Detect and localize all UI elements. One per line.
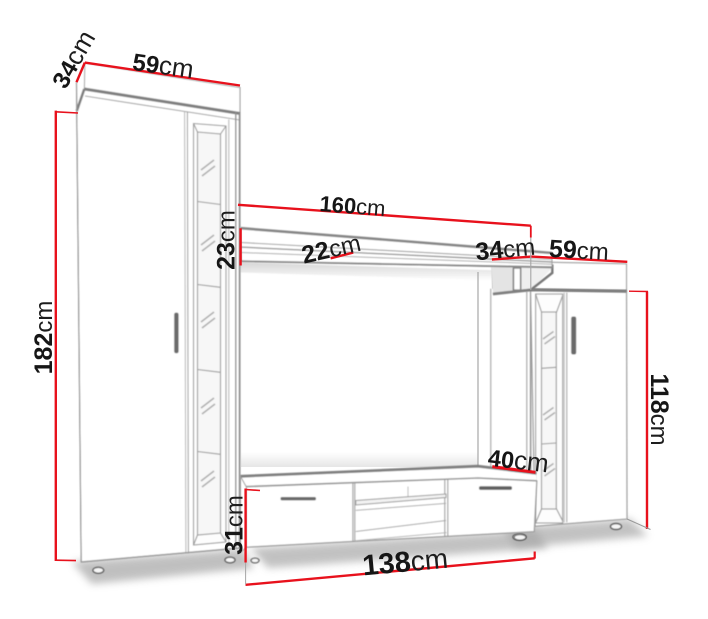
svg-text:182cm: 182cm: [30, 301, 58, 375]
svg-text:23cm: 23cm: [213, 210, 241, 270]
svg-text:31cm: 31cm: [221, 495, 249, 555]
svg-text:59cm: 59cm: [548, 235, 609, 266]
svg-text:118cm: 118cm: [645, 373, 673, 445]
svg-text:160cm: 160cm: [319, 191, 387, 221]
svg-text:34cm: 34cm: [474, 233, 536, 267]
